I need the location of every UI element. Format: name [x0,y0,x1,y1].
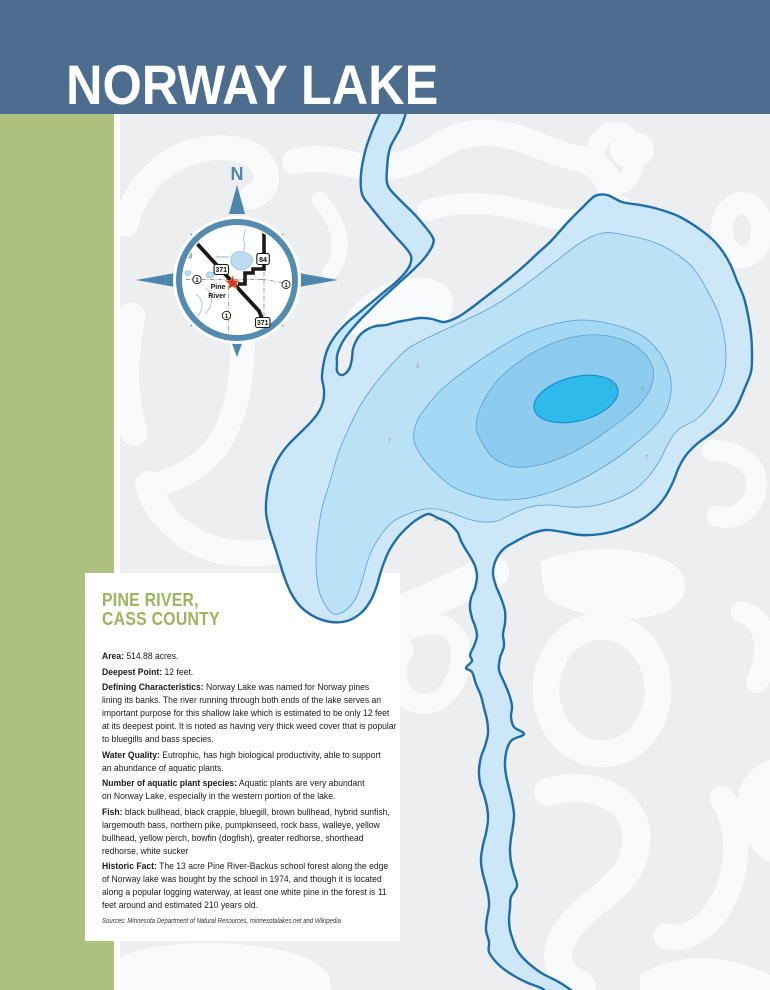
svg-text:Pine: Pine [211,284,226,291]
svg-text:371: 371 [257,320,269,327]
svg-text:N: N [231,164,244,184]
svg-text:Norway: Norway [215,254,230,259]
svg-text:River: River [208,293,226,300]
svg-text:84: 84 [259,257,267,264]
svg-text:371: 371 [215,267,227,274]
